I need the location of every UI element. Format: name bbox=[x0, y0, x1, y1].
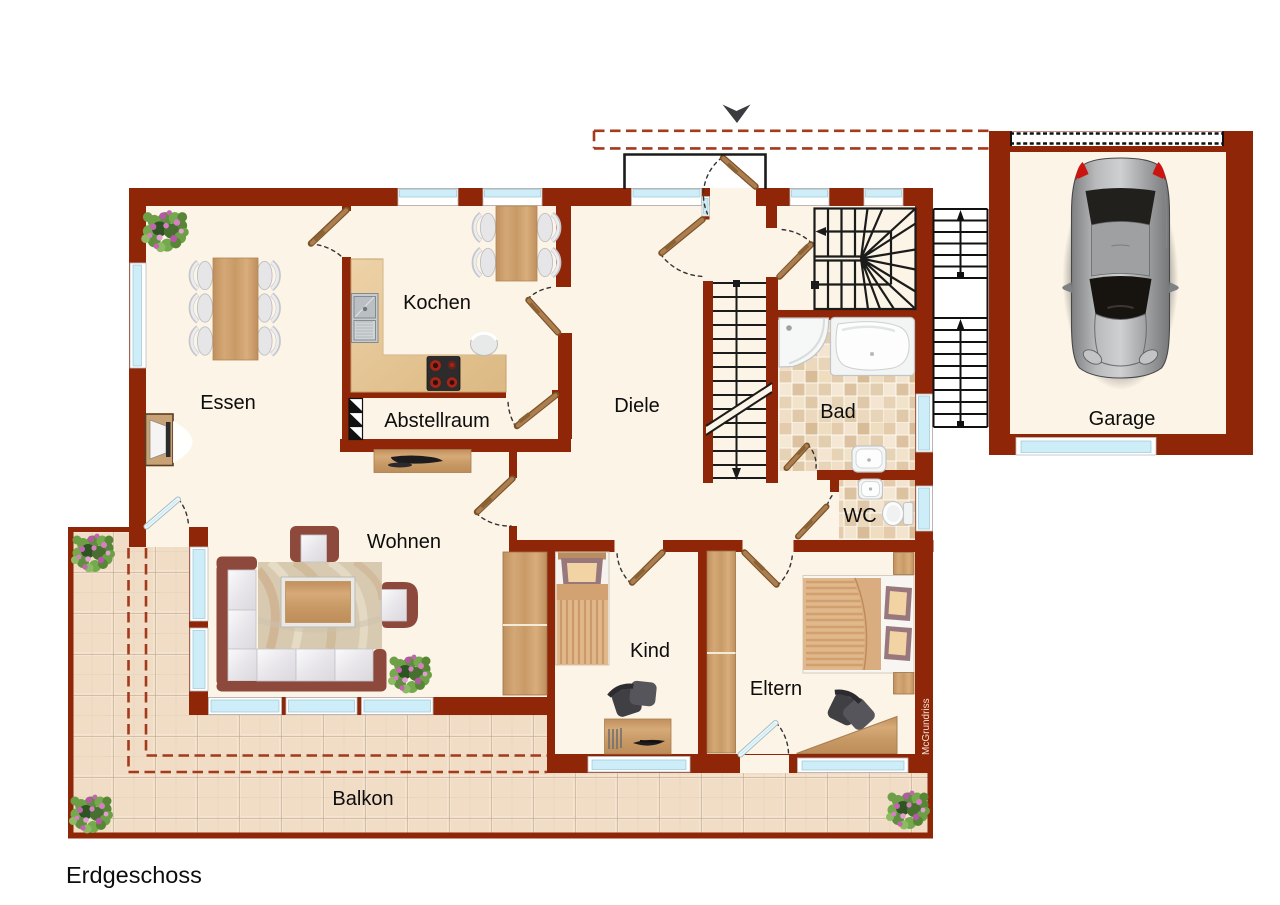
svg-text:McGrundriss: McGrundriss bbox=[921, 698, 932, 755]
svg-text:Wohnen: Wohnen bbox=[367, 531, 441, 553]
svg-text:Balkon: Balkon bbox=[332, 788, 393, 810]
svg-text:Erdgeschoss: Erdgeschoss bbox=[66, 862, 202, 888]
svg-text:Kochen: Kochen bbox=[403, 292, 471, 314]
svg-text:WC: WC bbox=[843, 505, 876, 527]
svg-text:Eltern: Eltern bbox=[750, 678, 802, 700]
svg-text:Garage: Garage bbox=[1089, 408, 1156, 430]
svg-text:Abstellraum: Abstellraum bbox=[384, 410, 490, 432]
svg-text:Kind: Kind bbox=[630, 640, 670, 662]
svg-text:Diele: Diele bbox=[614, 395, 660, 417]
svg-text:Bad: Bad bbox=[820, 401, 856, 423]
svg-text:Essen: Essen bbox=[200, 392, 256, 414]
